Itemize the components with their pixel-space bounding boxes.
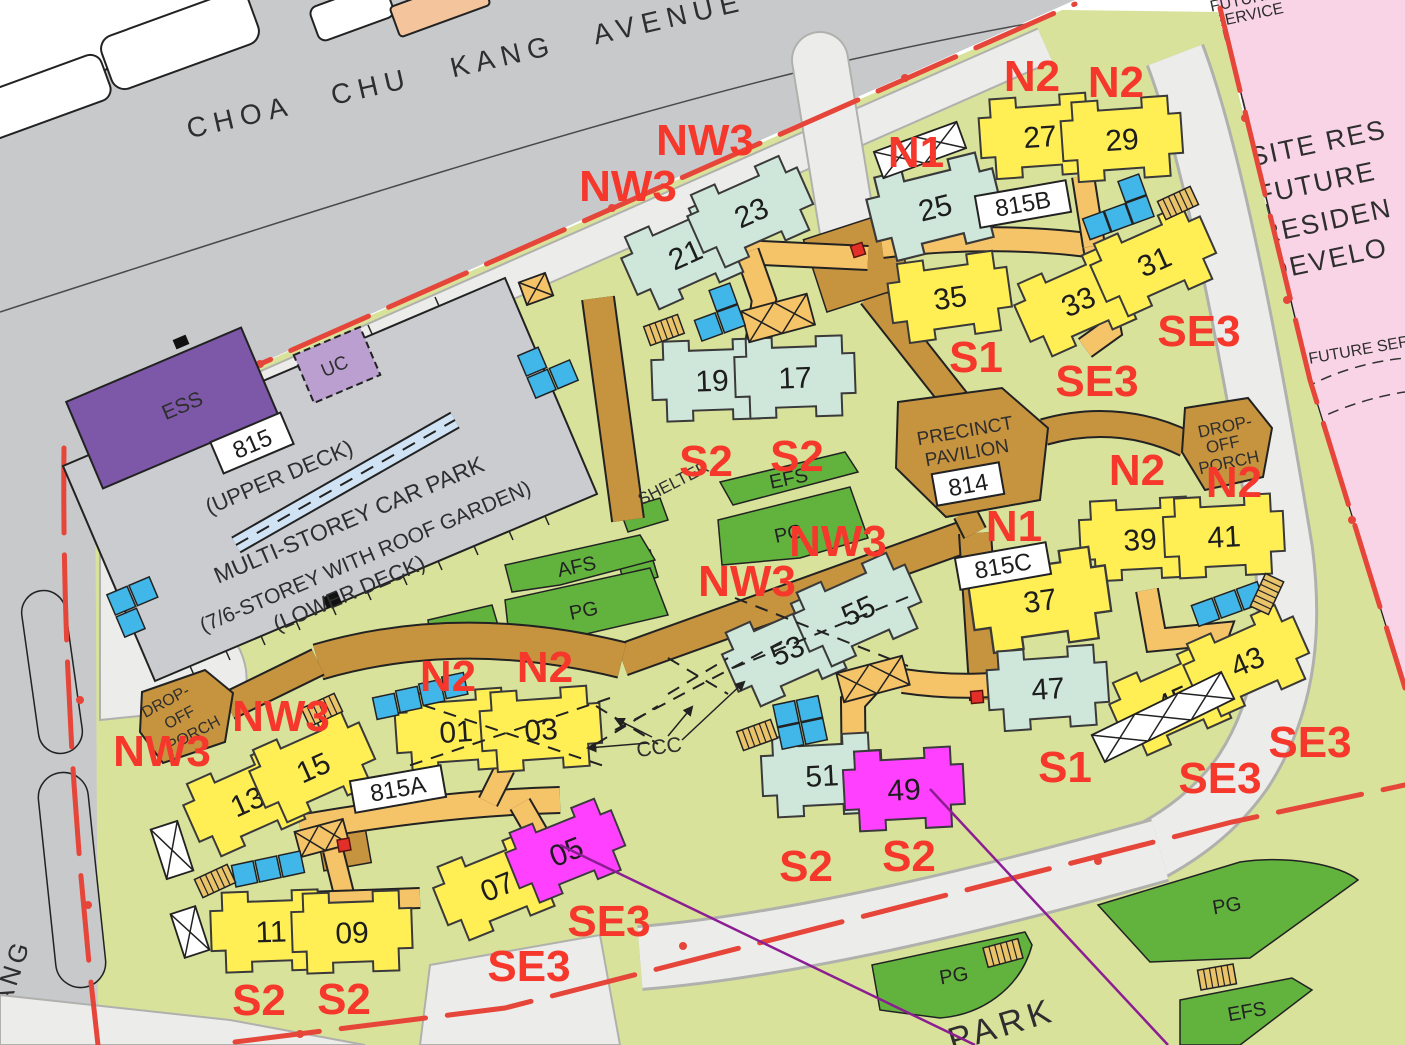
hydrant-marker	[970, 690, 983, 703]
facing-annotation: S1	[949, 333, 1003, 382]
facing-annotation: S2	[882, 832, 936, 881]
site-plan-canvas: CHOA CHU KANG AVENUE ANG SITE RES FUTURE…	[0, 0, 1405, 1045]
facing-annotation: N2	[1109, 446, 1165, 495]
facing-annotation: N2	[1004, 52, 1060, 101]
facing-annotation: NW3	[656, 116, 754, 165]
facing-annotation: S1	[1038, 743, 1092, 792]
block-49: 49	[842, 746, 966, 832]
road-top-branch	[820, 60, 848, 232]
facing-annotation: SE3	[1055, 357, 1138, 406]
facing-annotation: SE3	[1157, 307, 1240, 356]
facing-annotation: N1	[888, 128, 944, 177]
facing-annotation: SE3	[567, 897, 650, 946]
block-number: 51	[805, 759, 840, 794]
hydrant-marker	[850, 242, 865, 257]
facing-annotation: S2	[317, 975, 371, 1024]
facing-annotation: SE3	[1268, 718, 1351, 767]
block-number: 09	[335, 916, 370, 950]
block-17: 17	[734, 335, 857, 419]
facing-annotation: N2	[517, 643, 573, 692]
block-number: 11	[255, 915, 287, 949]
facing-annotation: SE3	[487, 942, 570, 991]
facing-annotation: NW3	[232, 692, 330, 741]
facing-annotation: SE3	[1178, 754, 1261, 803]
block-number: 49	[887, 773, 922, 808]
block-number: 35	[931, 280, 969, 317]
block-47: 47	[985, 644, 1110, 732]
facing-annotation: S2	[779, 842, 833, 891]
facing-annotation: S2	[770, 432, 824, 481]
facing-annotation: NW3	[789, 517, 887, 566]
facing-annotation: N1	[986, 502, 1042, 551]
facing-annotation: NW3	[113, 727, 211, 776]
block-number: 03	[523, 713, 559, 748]
facing-annotation: N2	[1206, 458, 1262, 507]
facing-annotation: NW3	[698, 557, 796, 606]
facing-annotation: NW3	[579, 162, 677, 211]
block-29: 29	[1059, 95, 1184, 183]
block-09: 09	[291, 890, 414, 974]
block-number: 41	[1207, 520, 1242, 555]
block-number: 27	[1022, 120, 1058, 155]
block-number: 39	[1123, 523, 1158, 558]
facing-annotation: S2	[232, 976, 286, 1025]
hydrant-marker	[337, 838, 351, 852]
block-number: 17	[778, 361, 813, 395]
site-plan-map: CHOA CHU KANG AVENUE ANG SITE RES FUTURE…	[0, 0, 1405, 1045]
block-number: 29	[1104, 123, 1140, 158]
block-number: 19	[695, 364, 730, 398]
block-number: 37	[1021, 583, 1059, 620]
facing-annotation: S2	[679, 437, 733, 486]
facing-annotation: N2	[1088, 58, 1144, 107]
block-number: 47	[1030, 672, 1066, 707]
facing-annotation: N2	[420, 652, 476, 701]
